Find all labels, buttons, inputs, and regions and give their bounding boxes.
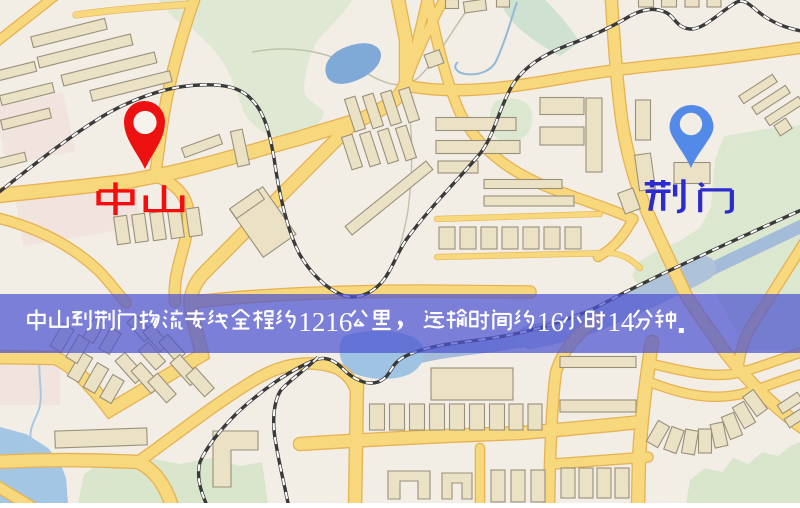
svg-text:1216: 1216 bbox=[298, 307, 352, 337]
svg-text:14: 14 bbox=[607, 307, 635, 337]
svg-text:16: 16 bbox=[537, 307, 564, 337]
